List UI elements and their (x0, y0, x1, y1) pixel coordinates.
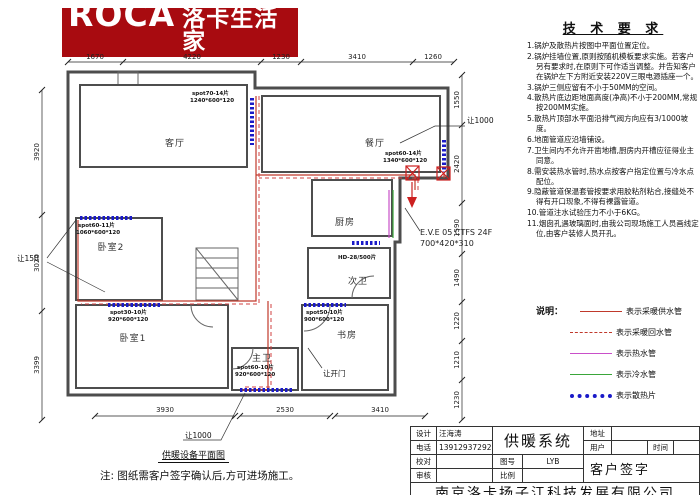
legend-entry-radiator: 表示散热片 (570, 390, 700, 401)
dim-right-7: 1230 (453, 391, 461, 409)
tb-time-value (674, 441, 700, 455)
offset-note-top: 让1000 (467, 115, 494, 125)
tech-item: 5.散热片顶部水平面沿排气阀方向应有3/1000坡度。 (527, 114, 699, 134)
stairs (196, 248, 238, 300)
tech-item: 1.锅炉及散热片按图中平面位置定位。 (527, 41, 699, 51)
tb-design-value: 汪海涛 (437, 427, 493, 441)
tech-item: 9.隐蔽管道保温套管按要求用胶粘剂粘合,接缝处不得有开口现象,不得有裸露管道。 (527, 187, 699, 207)
tb-drawingno-label: 图号 (493, 455, 523, 469)
tech-item: 7.卫生间内不允许开凿地槽,厨房内开槽应征得业主同意。 (527, 146, 699, 166)
door-arc-bed1 (191, 305, 213, 327)
dim-bottom-2: 2530 (276, 406, 294, 414)
plan-caption-note: 注: 图纸需客户签字确认后,方可进场施工。 (100, 468, 299, 483)
room-label-living: 客厅 (165, 137, 185, 149)
room-label-kitchen: 厨房 (335, 216, 355, 228)
room-label-bed1: 卧室1 (120, 332, 147, 344)
room-bed1 (76, 305, 228, 388)
offset-note-left: 让150 (17, 253, 39, 263)
tb-check-label: 校对 (411, 455, 437, 469)
supply-line-icon (580, 311, 622, 312)
tb-signature-label: 客户签字 (584, 455, 700, 483)
tech-item: 6.地面管道应沿墙铺设。 (527, 135, 699, 145)
radiator-label-bed2: spot60-11片 (78, 221, 115, 229)
room-label-bed2: 卧室2 (98, 241, 125, 253)
legend-title: 说明： (536, 307, 563, 317)
drawing-sheet: ROCA 洛卡生活家 欧 洲 品 质 温 润 生 活 技 术 要 求 1.锅炉及… (0, 0, 700, 495)
dim-top-4: 3410 (348, 53, 366, 61)
tb-audit-label: 审核 (411, 469, 437, 483)
radiator-label-study: spot50-10片 (306, 308, 343, 316)
tb-design-label: 设计 (411, 427, 437, 441)
tech-item: 4.散热片底边距地面高度(净高)不小于200MM,常规按200MM实施。 (527, 93, 699, 113)
dim-right-4: 1490 (453, 269, 461, 287)
dim-right-2: 2420 (453, 155, 461, 173)
dim-right-1: 1550 (453, 91, 461, 109)
radiator-label-dining: spot60-14片 (385, 149, 422, 157)
svg-text:1240*600*120: 1240*600*120 (190, 98, 234, 104)
tech-item: 3.锅炉三侧应留有不小于50MM的空间。 (527, 83, 699, 93)
tb-time-label: 时间 (648, 441, 674, 455)
dim-right-6: 1210 (453, 351, 461, 369)
plan-caption-title: 供暖设备平面图 (158, 448, 229, 463)
dim-left-1: 3920 (33, 143, 41, 161)
title-block: 设计 汪海涛 供暖系统 地址 电话 13912937292 用户 时间 校对 图… (410, 426, 700, 495)
tb-phone-label: 电话 (411, 441, 437, 455)
dim-top-5: 1260 (424, 53, 442, 61)
tb-address-value (612, 427, 700, 441)
radiator-label-living: spot70-14片 (192, 89, 229, 97)
svg-text:920*600*120: 920*600*120 (108, 317, 148, 323)
tb-audit-value (437, 469, 493, 483)
tech-item: 10.管道注水试验压力不小于6KG。 (527, 208, 699, 218)
tech-item: 11.烟囱孔遇玻璃面时,由我公司现场施工人员画线定位,由客户装修人员开孔。 (527, 219, 699, 239)
svg-text:920*600*120: 920*600*120 (235, 372, 275, 378)
legend-entry-return: 表示采暖回水管 (570, 327, 700, 338)
technical-requirements-title: 技 术 要 求 (527, 18, 699, 37)
tb-scale-value (523, 469, 584, 483)
legend-entry-cold: 表示冷水管 (570, 369, 700, 380)
cold-water-line-icon (570, 374, 612, 375)
dim-bottom-3: 3410 (371, 406, 389, 414)
radiator-label-bed1: spot30-10片 (110, 308, 147, 316)
brand-logo: ROCA (68, 0, 175, 31)
dim-left-3: 3399 (33, 356, 41, 374)
radiator-line-icon (570, 394, 612, 398)
tb-drawingno-value: LYB (523, 455, 584, 469)
tb-scale-label: 比例 (493, 469, 523, 483)
door-note: 让开门 (323, 368, 346, 378)
offset-note-bottom: 让1000 (185, 430, 212, 440)
tech-item: 2.锅炉挂墙位置,原则按随机模板要求实施。若客户另有要求时,在原则下可作适当调整… (527, 52, 699, 82)
svg-text:900*600*120: 900*600*120 (304, 317, 344, 323)
svg-text:1060*600*120: 1060*600*120 (76, 230, 120, 236)
dim-top-3: 1230 (272, 53, 290, 61)
room-label-dining: 餐厅 (365, 137, 385, 149)
radiator-label-bath1: spot60-10片 (237, 363, 274, 371)
tb-check-value (437, 455, 493, 469)
boiler-size-label: 700*420*310 (420, 239, 474, 248)
dim-right-5: 1220 (453, 312, 461, 330)
legend-entry-hot: 表示热水管 (570, 348, 700, 359)
hot-water-line-icon (570, 353, 612, 354)
tb-drawing-title: 供暖系统 (493, 427, 584, 455)
tech-item: 8.需安装热水管时,热水点按客户指定位置与冷水点配位。 (527, 167, 699, 187)
chimney-notch (118, 72, 138, 85)
tb-user-value (612, 441, 648, 455)
tb-address-label: 地址 (584, 427, 612, 441)
radiator-label-bath2: HD-28/500片 (338, 253, 377, 261)
dim-bottom-1: 3930 (156, 406, 174, 414)
room-label-bath1: 主卫 (252, 352, 272, 364)
svg-text:1340*600*120: 1340*600*120 (383, 158, 427, 164)
technical-requirements: 技 术 要 求 1.锅炉及散热片按图中平面位置定位。 2.锅炉挂墙位置,原则按随… (527, 18, 699, 240)
tb-phone-value: 13912937292 (437, 441, 493, 455)
return-line-icon (570, 332, 612, 333)
dim-top-2: 4220 (183, 53, 201, 61)
legend-entry-supply: 表示采暖供水管 (580, 306, 700, 317)
dim-top-1: 1670 (86, 53, 104, 61)
floor-plan: 1670 4220 1230 3410 1260 3920 3020 3399 … (15, 48, 535, 462)
legend: 说明： 表示采暖供水管 表示采暖回水管 表示热水管 表示冷水管 表示散热片 (536, 304, 700, 411)
room-label-study: 书房 (337, 329, 357, 341)
room-label-bath2: 次卫 (348, 275, 368, 287)
tb-company-name: 南京洛卡扬子江科技发展有限公司 (411, 483, 700, 495)
tb-user-label: 用户 (584, 441, 612, 455)
boiler-model-label: E.V.E 05 CTFS 24F (420, 228, 493, 237)
